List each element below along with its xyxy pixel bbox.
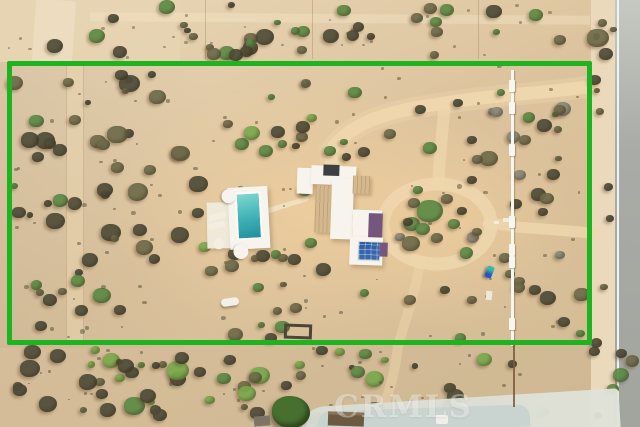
desert-bush <box>113 46 127 58</box>
desert-bush <box>140 351 143 353</box>
desert-bush <box>616 349 627 358</box>
desert-bush <box>126 56 129 58</box>
desert-bush <box>467 9 470 12</box>
desert-bush <box>40 372 42 374</box>
desert-bush <box>424 3 438 15</box>
property-boundary-overlay <box>7 61 592 345</box>
fence-line-south <box>513 345 515 407</box>
desert-bush <box>604 183 613 191</box>
desert-bush <box>321 365 324 368</box>
desert-bush <box>106 349 110 353</box>
desert-bush <box>341 44 344 46</box>
desert-bush <box>599 48 613 60</box>
desert-bush <box>48 370 52 373</box>
desert-bush <box>184 28 190 33</box>
desert-bush <box>131 375 135 379</box>
desert-bush <box>39 396 57 411</box>
desert-bush <box>606 215 614 222</box>
desert-bush <box>312 347 316 350</box>
desert-bush <box>598 19 608 27</box>
desert-bush <box>88 361 96 368</box>
desert-bush <box>370 40 374 43</box>
desert-bush <box>238 386 256 401</box>
desert-bush <box>19 37 23 40</box>
desert-bush <box>28 383 30 385</box>
desert-bush <box>379 351 381 353</box>
desert-bush <box>194 367 206 377</box>
desert-bush <box>453 45 457 48</box>
desert-bush <box>90 393 93 395</box>
desert-bush <box>79 374 97 389</box>
desert-bush <box>241 404 248 410</box>
desert-bush <box>390 386 392 388</box>
desert-bush <box>24 345 41 360</box>
desert-bush <box>118 359 134 373</box>
desert-bush <box>20 360 40 377</box>
desert-bush <box>594 88 600 93</box>
mls-watermark: CRMLS <box>334 389 473 425</box>
desert-bush <box>152 362 159 368</box>
desert-bush <box>224 355 236 365</box>
desert-bush <box>237 399 240 402</box>
desert-bush <box>244 26 246 28</box>
desert-bush <box>351 366 365 378</box>
desert-bush <box>515 4 519 7</box>
tree <box>272 396 310 427</box>
desert-bush <box>431 27 443 37</box>
desert-bush <box>589 347 600 356</box>
desert-bush <box>91 346 101 354</box>
desert-bush <box>108 14 119 23</box>
desert-bush <box>502 384 505 387</box>
desert-bush <box>256 29 274 44</box>
desert-bush <box>47 39 63 53</box>
desert-bush <box>613 368 629 382</box>
desert-bush <box>140 389 156 403</box>
desert-bush <box>96 389 107 399</box>
desert-bush <box>351 28 355 31</box>
desert-bush <box>97 357 101 360</box>
desert-bush <box>518 373 522 376</box>
aerial-photo: CRMLS <box>0 0 640 427</box>
desert-bush <box>493 29 500 35</box>
desert-bush <box>337 5 350 16</box>
desert-bush <box>548 11 552 14</box>
desert-bush <box>295 361 305 370</box>
desert-bush <box>169 382 173 386</box>
desert-bush <box>175 352 189 364</box>
desert-bush <box>138 362 144 367</box>
desert-bush <box>281 44 284 47</box>
desert-bush <box>132 26 135 29</box>
desert-bush <box>554 35 566 45</box>
desert-bush <box>596 108 605 115</box>
desert-bush <box>89 29 105 43</box>
desert-bush <box>358 361 361 364</box>
desert-bush <box>115 374 125 383</box>
desert-bush <box>172 36 175 38</box>
desert-bush <box>430 17 443 28</box>
desert-bush <box>411 13 423 23</box>
desert-bush <box>217 373 230 384</box>
desert-bush <box>591 338 602 347</box>
desert-bush <box>159 0 175 14</box>
desert-bush <box>323 29 340 43</box>
desert-bush <box>80 407 87 413</box>
desert-bush <box>163 46 166 49</box>
desert-bush <box>381 357 389 364</box>
desert-bush <box>329 19 332 21</box>
desert-bush <box>50 349 66 363</box>
desert-bush <box>8 47 10 49</box>
desert-bush <box>297 46 307 55</box>
desert-bush <box>100 403 116 417</box>
desert-bush <box>210 42 213 44</box>
desert-bush <box>68 399 70 401</box>
desert-bush <box>274 20 281 26</box>
desert-bush <box>153 409 167 421</box>
desert-bush <box>84 392 87 395</box>
desert-bush <box>366 371 384 386</box>
desert-bush <box>335 348 345 357</box>
desert-bush <box>13 384 27 396</box>
neighbor-structure <box>254 415 271 426</box>
desert-bush <box>519 21 522 24</box>
desert-bush <box>379 381 382 384</box>
desert-bush <box>626 355 639 366</box>
desert-bush <box>610 27 616 32</box>
desert-bush <box>600 284 607 290</box>
desert-bush <box>426 15 429 18</box>
desert-bush <box>486 5 502 19</box>
desert-bush <box>316 346 328 356</box>
desert-bush <box>229 49 243 61</box>
desert-bush <box>362 44 365 46</box>
desert-bush <box>223 393 225 395</box>
desert-bush <box>430 51 440 59</box>
desert-bush <box>529 9 543 21</box>
desert-bush <box>412 363 419 369</box>
desert-bush <box>440 4 454 16</box>
desert-bush <box>281 381 292 390</box>
desert-bush <box>207 48 221 60</box>
desert-bush <box>359 349 371 360</box>
desert-bush <box>184 41 188 44</box>
desert-bush <box>459 363 461 365</box>
desert-bush <box>228 2 235 8</box>
desert-bush <box>468 354 472 357</box>
desert-bush <box>159 361 167 368</box>
desert-bush <box>185 14 188 17</box>
desert-bush <box>346 32 349 35</box>
desert-bush <box>262 390 265 393</box>
desert-bush <box>167 361 189 379</box>
desert-bush <box>477 353 492 366</box>
desert-bush <box>205 396 215 405</box>
desert-bush <box>233 388 236 391</box>
desert-bush <box>189 33 198 41</box>
desert-bush <box>483 54 485 56</box>
desert-bush <box>296 371 306 380</box>
desert-bush <box>587 29 609 48</box>
desert-bush <box>28 48 31 51</box>
desert-bush <box>367 33 375 39</box>
